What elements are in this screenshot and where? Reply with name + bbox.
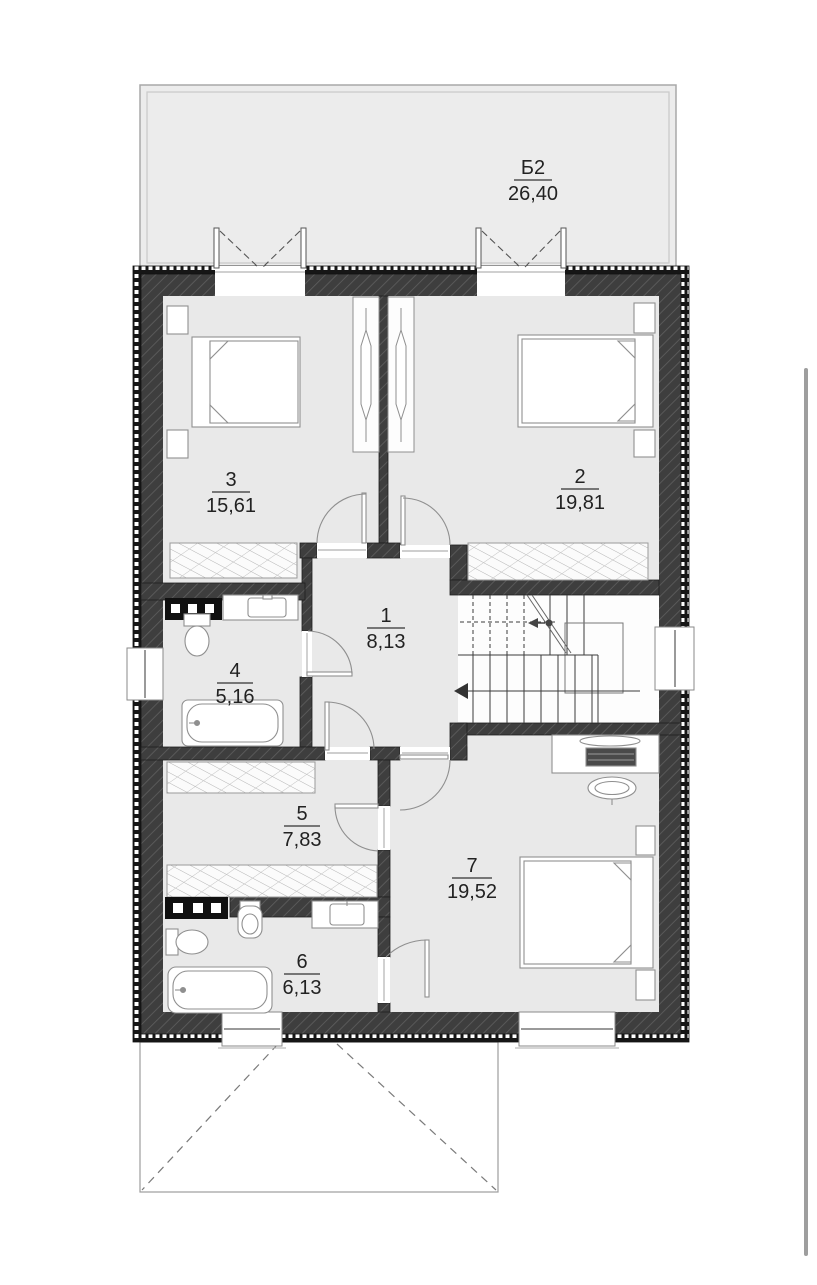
toilet — [185, 626, 209, 656]
nightstand — [167, 306, 188, 334]
balcony-area: 26,40 — [508, 183, 558, 205]
toilet-cistern — [184, 614, 210, 626]
room-area: 15,61 — [206, 495, 256, 517]
balcony-number: Б2 — [521, 157, 545, 179]
floor-plan-canvas: Б2 26,40 1 8,13 2 19,81 3 15,61 4 5,16 5… — [0, 0, 817, 1280]
room-area: 6,13 — [283, 977, 322, 999]
door-leaf-room6 — [425, 940, 429, 997]
nightstand — [636, 826, 655, 855]
nightstand — [167, 430, 188, 458]
room-area: 7,83 — [283, 829, 322, 851]
door-leaf-room7 — [400, 755, 448, 759]
room-number: 7 — [466, 855, 477, 877]
window-left — [127, 648, 163, 700]
room-number: 2 — [574, 466, 585, 488]
door-leaf-bath4 — [307, 672, 352, 676]
room-number: 6 — [296, 951, 307, 973]
door-leaf-room5 — [325, 702, 329, 750]
door-leaf-room2 — [401, 496, 405, 545]
roof-outline — [140, 1042, 498, 1192]
balcony — [140, 85, 676, 268]
chair-seat — [595, 782, 629, 795]
scrollbar-thumb[interactable] — [804, 368, 808, 1256]
window-right-stairs — [655, 627, 694, 690]
door-leaf-room3 — [362, 493, 366, 543]
room-area: 5,16 — [216, 686, 255, 708]
room-number: 5 — [296, 803, 307, 825]
room-number: 1 — [380, 605, 391, 627]
nightstand — [634, 303, 655, 333]
room-area: 19,52 — [447, 881, 497, 903]
room-area: 8,13 — [367, 631, 406, 653]
nightstand — [636, 970, 655, 1000]
room-area: 19,81 — [555, 492, 605, 514]
window-bottom-right — [515, 1012, 619, 1048]
door-leaf-room5-room7 — [335, 804, 378, 808]
room-number: 4 — [229, 660, 240, 682]
room-number: 3 — [225, 469, 236, 491]
toilet — [176, 930, 208, 954]
window-bottom-left — [218, 1012, 286, 1048]
nightstand — [634, 430, 655, 457]
floor-plan-drawing: Б2 26,40 1 8,13 2 19,81 3 15,61 4 5,16 5… — [0, 0, 817, 1280]
